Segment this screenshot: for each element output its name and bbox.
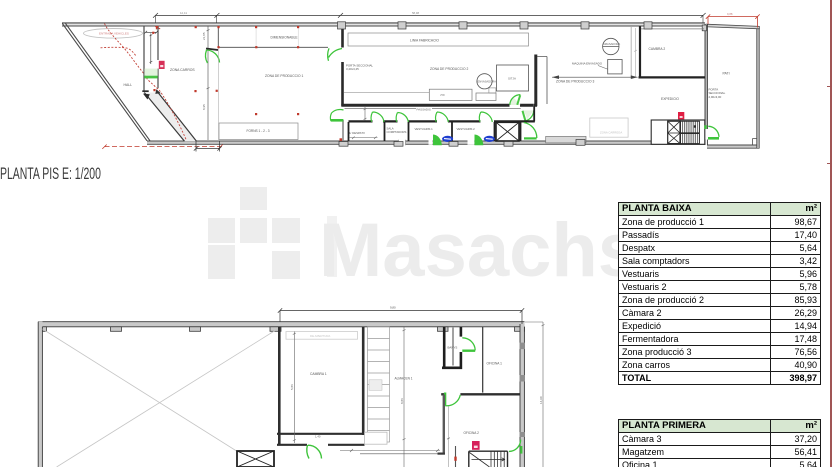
svg-text:VESTUARIS 1: VESTUARIS 1	[415, 127, 434, 131]
svg-text:OFICINA 2: OFICINA 2	[464, 431, 480, 435]
svg-text:1,40: 1,40	[315, 435, 321, 439]
svg-text:AMASADORA: AMASADORA	[603, 42, 620, 46]
svg-text:HALL: HALL	[124, 83, 133, 87]
svg-text:8,95: 8,95	[202, 104, 206, 110]
svg-text:VESTUARIS 2: VESTUARIS 2	[457, 127, 476, 131]
svg-text:2,90x3,00: 2,90x3,00	[709, 95, 722, 99]
svg-text:PASSADIS: PASSADIS	[417, 108, 431, 112]
svg-text:21,85: 21,85	[202, 32, 206, 40]
svg-text:1r DESPATX: 1r DESPATX	[349, 131, 365, 135]
svg-text:ENVASADORA: ENVASADORA	[478, 79, 497, 83]
svg-text:ZONA DE PRODUCCIO 3: ZONA DE PRODUCCIO 3	[556, 80, 594, 84]
svg-text:CAMBRA 2: CAMBRA 2	[649, 47, 666, 51]
svg-text:DIMENSIONABLE: DIMENSIONABLE	[271, 36, 299, 40]
svg-text:COMPTADORS: COMPTADORS	[387, 130, 407, 134]
svg-text:ZONA CARROS: ZONA CARROS	[170, 68, 195, 72]
svg-text:ALMACEN 1: ALMACEN 1	[395, 377, 413, 381]
svg-text:9,88: 9,88	[727, 12, 733, 16]
svg-text:5,86: 5,86	[290, 384, 294, 390]
svg-text:LINIA FABRICACIO: LINIA FABRICACIO	[410, 38, 439, 42]
svg-text:DE APERTURA: DE APERTURA	[310, 334, 330, 338]
svg-text:9,80: 9,80	[390, 306, 396, 310]
svg-text:SITJA: SITJA	[508, 76, 516, 80]
svg-text:14,90: 14,90	[539, 396, 543, 404]
svg-text:12,41: 12,41	[180, 11, 187, 15]
svg-text:BANYS: BANYS	[448, 346, 458, 350]
svg-text:ENTRADA VEHICLES: ENTRADA VEHICLES	[99, 31, 129, 35]
svg-text:CAMBRA 1: CAMBRA 1	[310, 372, 327, 376]
svg-text:OFICINA 1: OFICINA 1	[487, 361, 503, 365]
svg-text:8,86: 8,86	[400, 398, 404, 404]
svg-text:MAQUINA ENVASADO: MAQUINA ENVASADO	[572, 62, 603, 66]
svg-text:PATI: PATI	[723, 72, 730, 76]
svg-text:FORNS 1 - 2 - 3: FORNS 1 - 2 - 3	[247, 129, 270, 133]
svg-text:3,40x3,45: 3,40x3,45	[346, 67, 359, 71]
svg-text:ZONA CARREGA: ZONA CARREGA	[600, 131, 622, 135]
svg-text:ZONA DE PRODUCCIO 1: ZONA DE PRODUCCIO 1	[265, 74, 303, 78]
svg-text:EXPEDICIO: EXPEDICIO	[661, 97, 679, 101]
svg-text:JYF: JYF	[440, 93, 445, 97]
svg-text:58,98: 58,98	[412, 11, 419, 15]
svg-text:ZONA DE PRODUCCIO 2: ZONA DE PRODUCCIO 2	[430, 67, 468, 71]
